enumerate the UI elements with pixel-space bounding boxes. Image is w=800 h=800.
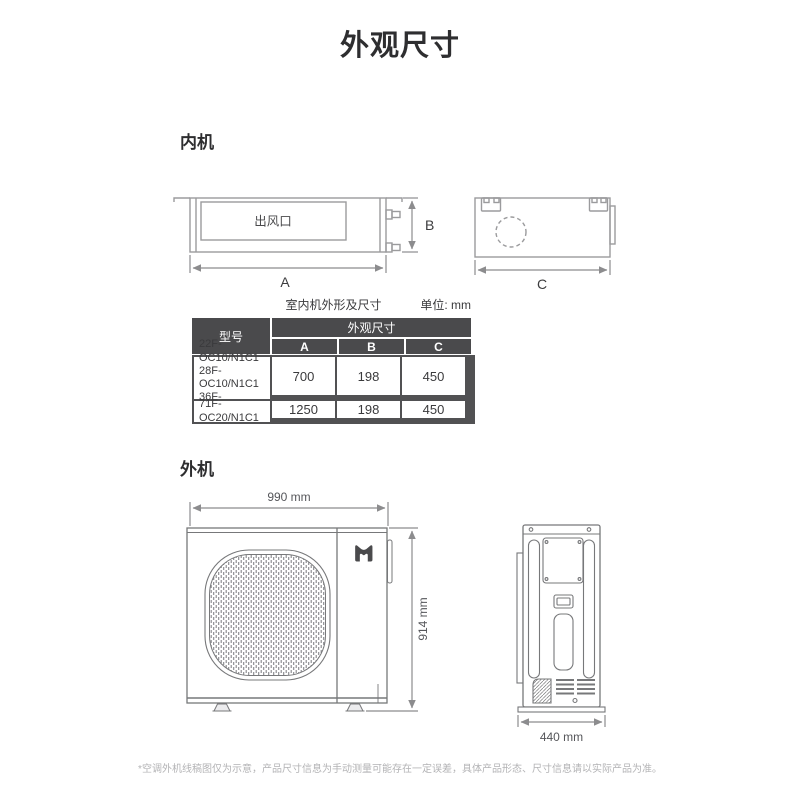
outdoor-dim-depth: 440 mm bbox=[518, 715, 605, 744]
col-header-a: A bbox=[272, 339, 337, 354]
height-914-label: 914 mm bbox=[416, 597, 430, 640]
outdoor-unit-drawing: 990 mm 914 mm bbox=[165, 485, 645, 753]
depth-440-label: 440 mm bbox=[540, 730, 583, 744]
dim-c-label: C bbox=[537, 276, 547, 292]
table-cell-c2: 450 bbox=[402, 401, 465, 418]
outdoor-feet bbox=[213, 704, 365, 711]
indoor-unit-drawing: 出风口 B A C bbox=[163, 189, 643, 293]
indoor-side-view bbox=[475, 198, 615, 257]
table-cell-c1: 450 bbox=[402, 357, 465, 395]
col-header-dims-group: 外观尺寸 bbox=[272, 318, 471, 337]
table-cell-a1: 700 bbox=[272, 357, 335, 395]
indoor-spec-table: 室内机外形及尺寸 单位: mm 型号 外观尺寸 A B C 22F-OC10/N… bbox=[192, 296, 475, 424]
indoor-section-label: 内机 bbox=[180, 128, 214, 153]
outdoor-side-view bbox=[517, 525, 605, 712]
table-cell-b1: 198 bbox=[337, 357, 400, 395]
outdoor-dim-width: 990 mm bbox=[190, 490, 388, 526]
dim-a-label: A bbox=[280, 274, 290, 290]
table-row-model2: 71F-OC20/N1C1 bbox=[194, 401, 270, 422]
indoor-dim-a: A bbox=[190, 255, 386, 290]
width-990-label: 990 mm bbox=[267, 490, 310, 504]
table-cell-a2: 1250 bbox=[272, 401, 335, 418]
col-header-b: B bbox=[339, 339, 404, 354]
dim-b-label: B bbox=[425, 217, 434, 233]
table-cell-b2: 198 bbox=[337, 401, 400, 418]
air-outlet-label: 出风口 bbox=[254, 215, 292, 229]
outdoor-front-view bbox=[187, 528, 392, 711]
col-header-c: C bbox=[406, 339, 471, 354]
outdoor-section-label: 外机 bbox=[180, 455, 214, 480]
indoor-dim-c: C bbox=[475, 260, 610, 292]
table-body: 22F-OC10/N1C1 28F-OC10/N1C1 36F-OC10/N1C… bbox=[192, 355, 475, 424]
table-row-models: 22F-OC10/N1C1 28F-OC10/N1C1 36F-OC10/N1C… bbox=[194, 357, 270, 399]
indoor-dim-b: B bbox=[402, 198, 434, 252]
footnote-disclaimer: *空调外机线稿图仅为示意，产品尺寸信息为手动测量可能存在一定误差，具体产品形态、… bbox=[0, 760, 800, 775]
page-title: 外观尺寸 bbox=[0, 22, 800, 64]
indoor-front-view: 出风口 bbox=[174, 198, 402, 252]
table-unit-label: 单位: mm bbox=[420, 296, 471, 313]
